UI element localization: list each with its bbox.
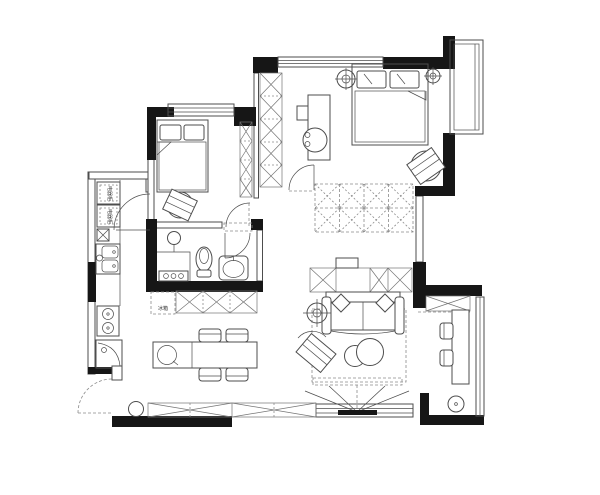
shoe-cabinet	[148, 403, 316, 417]
entry-door	[78, 379, 112, 413]
makeup-mirror	[168, 232, 181, 253]
room-second-bedroom	[157, 120, 252, 231]
room-living	[296, 258, 412, 415]
fridge-label: 冰箱	[158, 305, 168, 312]
bed-master	[352, 64, 428, 145]
corner-counter	[96, 340, 122, 368]
dining-chair	[226, 329, 248, 342]
vanity-drawers	[159, 271, 188, 281]
room-bathroom	[157, 232, 250, 282]
door-bathroom	[225, 233, 250, 258]
floor-plan-page: 电器柜 电器柜	[0, 0, 600, 495]
door-second-bedroom	[224, 203, 252, 231]
master-window	[278, 57, 383, 67]
bed-second-bedroom	[157, 120, 208, 192]
wall-box	[97, 229, 109, 241]
tv	[338, 410, 377, 415]
entry	[78, 379, 316, 417]
ceiling-light-1	[335, 68, 357, 90]
sofa	[322, 292, 404, 334]
coffee-tables	[345, 339, 384, 367]
master-wardrobe	[315, 184, 413, 232]
armchair	[296, 331, 336, 372]
room-dining: 冰箱	[151, 291, 257, 381]
toilet	[196, 247, 212, 277]
door-master	[289, 165, 314, 191]
floor-plan-svg: 电器柜 电器柜	[0, 0, 600, 495]
room-kitchen: 电器柜 电器柜	[96, 180, 150, 380]
fridge: 冰箱	[151, 292, 175, 314]
dining-chair	[199, 368, 221, 381]
dining-table	[153, 342, 257, 368]
bedroom2-window	[168, 104, 234, 116]
wash-basin	[219, 256, 248, 280]
console-cabinet	[310, 258, 412, 292]
bedroom2-wardrobe	[240, 122, 252, 197]
door-jamb	[112, 366, 122, 380]
dressing-table	[297, 95, 330, 160]
desk-chair	[440, 323, 453, 339]
dining-chair	[199, 329, 221, 342]
console-decor	[336, 258, 358, 268]
balcony-window	[476, 297, 484, 416]
appliance-cabinet-top: 电器柜	[97, 182, 120, 204]
kitchen-cabinet-label-top: 电器柜	[106, 186, 113, 201]
hall-wardrobe-wide	[260, 73, 282, 187]
chair-second-bedroom	[163, 189, 198, 221]
door-kitchen	[114, 194, 150, 230]
walls	[88, 36, 484, 427]
kitchen-cabinet-label-bottom: 电器柜	[106, 209, 113, 224]
dining-chair	[226, 368, 248, 381]
desk	[452, 310, 469, 384]
entry-stool	[129, 402, 144, 417]
sideboard	[176, 291, 257, 313]
stove	[97, 306, 119, 336]
ceiling-light-2	[424, 67, 442, 85]
desk-chair	[440, 350, 453, 366]
double-sink	[96, 244, 120, 274]
tv-with-view-lines	[305, 378, 409, 415]
lounge-chair-master	[407, 148, 445, 185]
floor-drain	[448, 396, 464, 412]
